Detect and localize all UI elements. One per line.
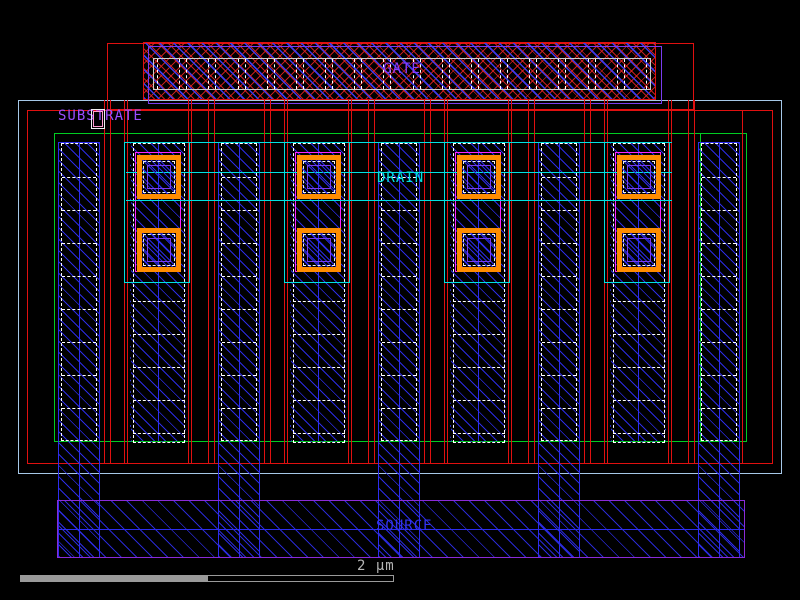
cell-separator xyxy=(133,334,185,335)
poly-gate-line xyxy=(191,100,192,464)
cell-separator xyxy=(62,375,96,376)
cell-separator xyxy=(382,243,416,244)
cell-separator xyxy=(453,400,505,401)
cell-separator xyxy=(382,309,416,310)
source-finger xyxy=(218,142,260,558)
drain-via xyxy=(297,228,341,272)
cell-separator xyxy=(222,276,256,277)
via-metal-outline xyxy=(627,238,651,262)
cell-separator xyxy=(62,408,96,409)
drain-via xyxy=(137,228,181,272)
poly-gate-line xyxy=(368,100,369,464)
gate-contact-cell xyxy=(624,59,647,89)
cell-separator xyxy=(293,367,345,368)
source-net-label: SOURCE xyxy=(376,518,433,534)
gate-contact-cell xyxy=(245,59,268,89)
cell-separator xyxy=(702,243,736,244)
contact-cell-column xyxy=(541,143,577,441)
gate-contact-cell xyxy=(478,59,501,89)
cell-separator xyxy=(222,243,256,244)
poly-gate-line xyxy=(208,100,209,464)
cell-separator xyxy=(613,400,665,401)
cell-separator xyxy=(542,276,576,277)
drain-via xyxy=(297,155,341,199)
cell-separator xyxy=(133,400,185,401)
cell-separator xyxy=(62,210,96,211)
cell-separator xyxy=(293,400,345,401)
poly-gate-line xyxy=(688,100,689,464)
poly-gate-line xyxy=(264,100,265,464)
gate-contact-cell xyxy=(157,59,180,89)
contact-cell-column xyxy=(221,143,257,441)
via-metal-outline xyxy=(307,238,331,262)
cell-separator xyxy=(613,367,665,368)
poly-gate-line xyxy=(694,100,695,464)
layout-layers xyxy=(0,0,800,600)
cell-separator xyxy=(702,342,736,343)
origin-marker xyxy=(91,109,105,129)
cell-separator xyxy=(542,243,576,244)
drain-net-label: DRAIN xyxy=(377,170,424,186)
gate-contact-cell xyxy=(303,59,326,89)
cell-separator xyxy=(542,309,576,310)
origin-marker-inner xyxy=(93,111,103,127)
cell-separator xyxy=(133,367,185,368)
cell-separator xyxy=(293,301,345,302)
drain-via xyxy=(457,228,501,272)
cell-separator xyxy=(702,375,736,376)
poly-gate-line xyxy=(534,100,535,464)
cell-separator xyxy=(702,309,736,310)
cell-separator xyxy=(702,210,736,211)
cell-separator xyxy=(382,342,416,343)
gate-contact-cell xyxy=(565,59,588,89)
cell-separator xyxy=(62,177,96,178)
via-metal-outline xyxy=(467,238,491,262)
contact-cell-column xyxy=(381,143,417,441)
cell-separator xyxy=(133,301,185,302)
gate-contact-cell xyxy=(215,59,238,89)
cell-separator xyxy=(453,367,505,368)
gate-contact-cell xyxy=(507,59,530,89)
cell-separator xyxy=(542,177,576,178)
poly-gate-line xyxy=(584,100,585,464)
poly-gate-line xyxy=(671,100,672,464)
cell-separator xyxy=(382,210,416,211)
cell-separator xyxy=(222,408,256,409)
drain-rail-line xyxy=(126,142,672,143)
poly-gate-line xyxy=(214,100,215,464)
drain-via xyxy=(617,155,661,199)
cell-separator xyxy=(702,408,736,409)
cell-separator xyxy=(542,342,576,343)
via-metal-outline xyxy=(467,165,491,189)
cell-separator xyxy=(222,210,256,211)
source-finger xyxy=(58,142,100,558)
drain-rail-line xyxy=(126,200,672,201)
cell-separator xyxy=(222,342,256,343)
cell-separator xyxy=(453,301,505,302)
cell-separator xyxy=(382,375,416,376)
cell-separator xyxy=(453,433,505,434)
contact-cell-column xyxy=(701,143,737,441)
scale-bar-outline xyxy=(207,575,394,582)
poly-gate-line xyxy=(270,100,271,464)
poly-gate-line xyxy=(351,100,352,464)
cell-separator xyxy=(542,210,576,211)
layout-canvas[interactable]: SUBSTRATE GATE DRAIN SOURCE 2 µm xyxy=(0,0,800,600)
cell-separator xyxy=(62,243,96,244)
poly-gate-line xyxy=(430,100,431,464)
poly-gate-line xyxy=(374,100,375,464)
via-metal-outline xyxy=(147,165,171,189)
gate-contact-cell xyxy=(536,59,559,89)
cell-separator xyxy=(222,375,256,376)
scale-label: 2 µm xyxy=(357,558,395,574)
gate-net-label: GATE xyxy=(352,61,452,77)
drain-via xyxy=(137,155,181,199)
cell-separator xyxy=(222,177,256,178)
drain-via xyxy=(457,155,501,199)
cell-separator xyxy=(293,433,345,434)
source-finger xyxy=(538,142,580,558)
poly-gate-line xyxy=(104,100,105,464)
cell-separator xyxy=(293,334,345,335)
cell-separator xyxy=(62,342,96,343)
cell-separator xyxy=(702,177,736,178)
poly-gate-line xyxy=(742,110,743,464)
cell-separator xyxy=(613,301,665,302)
via-metal-outline xyxy=(147,238,171,262)
gate-contact-cell xyxy=(274,59,297,89)
cell-separator xyxy=(62,309,96,310)
cell-separator xyxy=(542,408,576,409)
cell-separator xyxy=(382,408,416,409)
gate-contact-cell xyxy=(449,59,472,89)
source-finger xyxy=(378,142,420,558)
cell-separator xyxy=(453,334,505,335)
cell-separator xyxy=(382,276,416,277)
scale-bar-solid xyxy=(20,575,207,582)
via-metal-outline xyxy=(307,165,331,189)
gate-contact-cell xyxy=(186,59,209,89)
cell-separator xyxy=(613,433,665,434)
cell-separator xyxy=(702,276,736,277)
poly-gate-line xyxy=(511,100,512,464)
source-finger xyxy=(698,142,740,558)
drain-via xyxy=(617,228,661,272)
cell-separator xyxy=(222,309,256,310)
cell-separator xyxy=(613,334,665,335)
contact-cell-column xyxy=(61,143,97,441)
poly-gate-line xyxy=(424,100,425,464)
cell-separator xyxy=(62,276,96,277)
poly-gate-line xyxy=(590,100,591,464)
cell-separator xyxy=(542,375,576,376)
poly-gate-line xyxy=(528,100,529,464)
poly-gate-line xyxy=(110,100,111,464)
cell-separator xyxy=(133,433,185,434)
gate-contact-cell xyxy=(595,59,618,89)
via-metal-outline xyxy=(627,165,651,189)
